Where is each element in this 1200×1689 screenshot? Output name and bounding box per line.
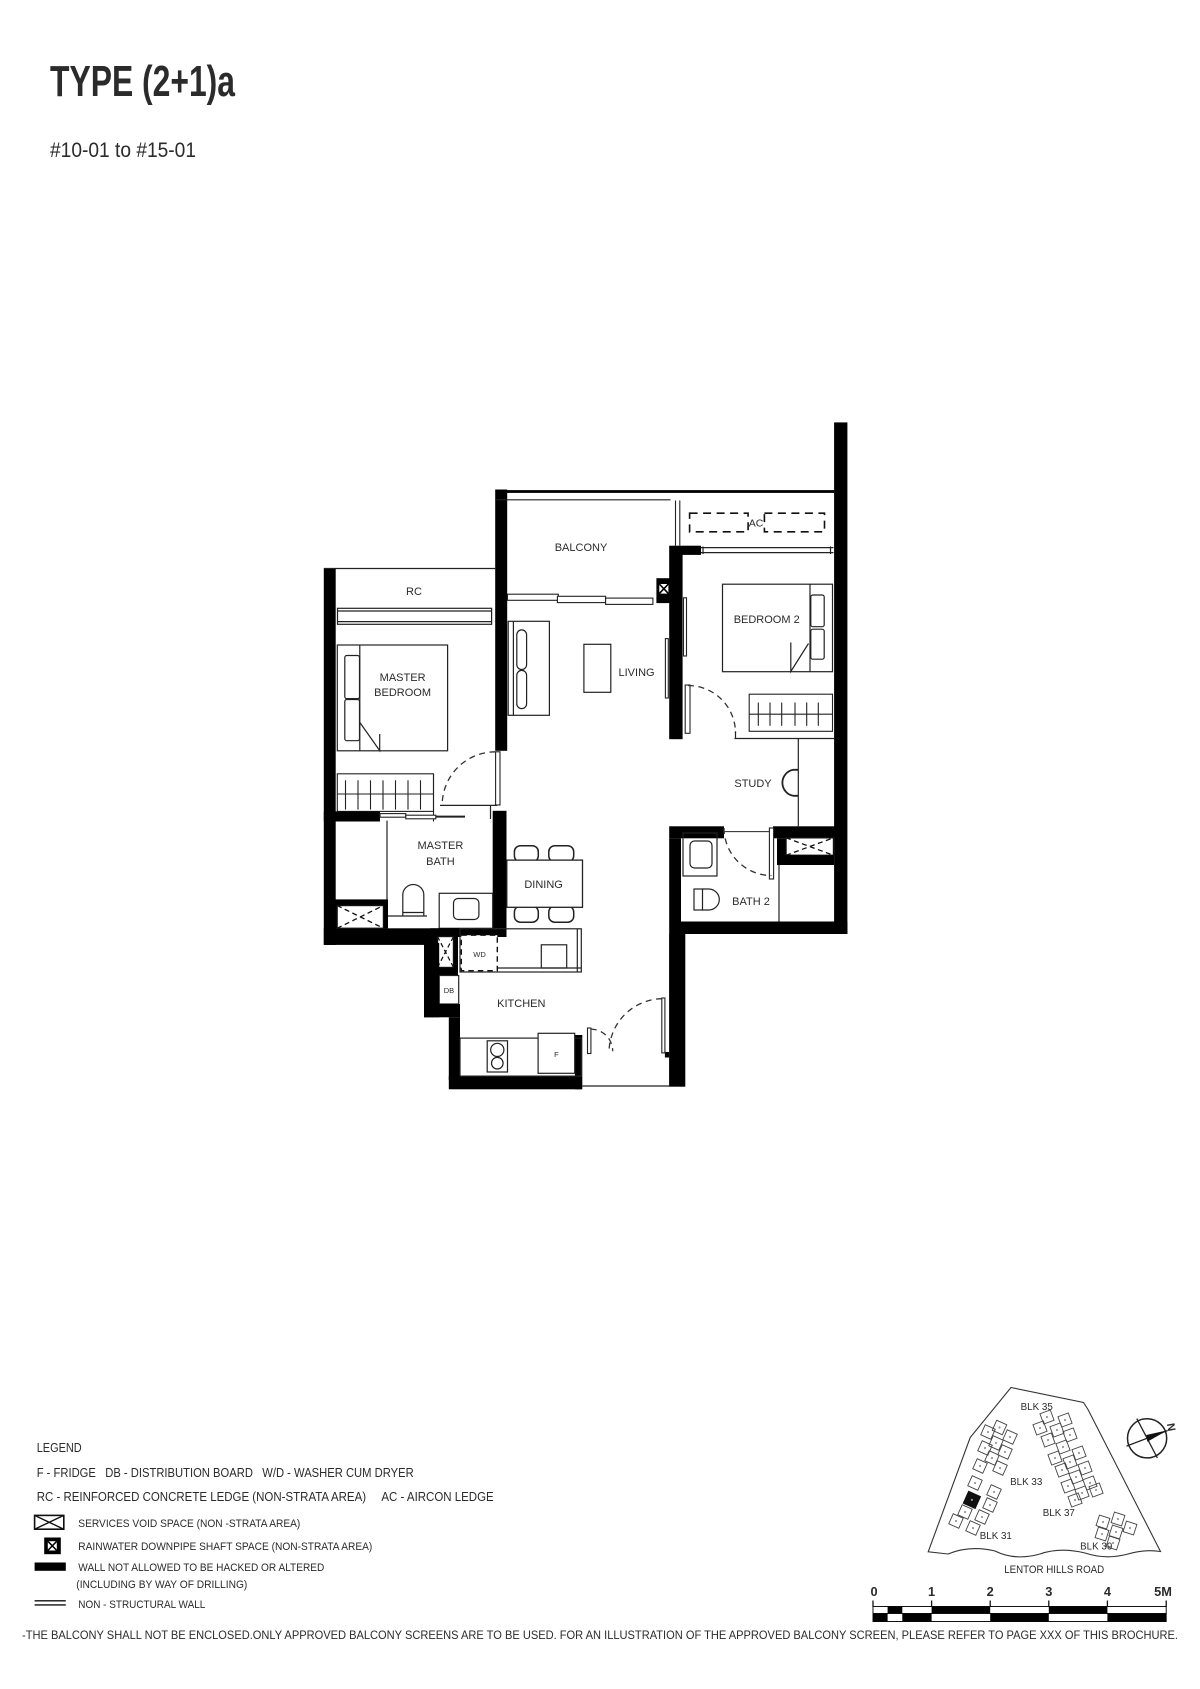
svg-text:F - FRIDGE DB - DISTRIBUTION: F - FRIDGE DB - DISTRIBUTION BOARD W/D -… <box>37 1466 414 1480</box>
svg-text:SERVICES VOID SPACE (NON -STRA: SERVICES VOID SPACE (NON -STRATA AREA) <box>78 1518 300 1530</box>
svg-text:F: F <box>554 1050 559 1059</box>
svg-text:5M: 5M <box>1154 1584 1172 1599</box>
svg-text:MASTER: MASTER <box>417 840 463 852</box>
svg-text:BALCONY: BALCONY <box>555 542 608 554</box>
svg-text:N: N <box>1164 1422 1177 1432</box>
svg-text:LEGEND: LEGEND <box>37 1441 82 1455</box>
svg-text:BEDROOM: BEDROOM <box>374 687 431 699</box>
svg-text:0: 0 <box>870 1584 877 1599</box>
svg-text:MASTER: MASTER <box>380 672 426 684</box>
svg-text:#10-01 to #15-01: #10-01 to #15-01 <box>50 139 196 162</box>
svg-text:KITCHEN: KITCHEN <box>497 998 545 1010</box>
svg-text:(INCLUDING BY WAY OF DRILLING): (INCLUDING BY WAY OF DRILLING) <box>76 1579 247 1591</box>
svg-text:BLK 31: BLK 31 <box>980 1531 1012 1542</box>
svg-text:DB: DB <box>444 986 454 995</box>
svg-text:STUDY: STUDY <box>734 778 772 790</box>
svg-text:BATH: BATH <box>426 856 455 868</box>
svg-text:DINING: DINING <box>524 879 563 891</box>
svg-text:BLK 33: BLK 33 <box>1010 1477 1043 1488</box>
svg-text:BLK 35: BLK 35 <box>1021 1402 1054 1413</box>
svg-text:RC: RC <box>406 586 422 598</box>
svg-text:BATH 2: BATH 2 <box>732 896 770 908</box>
svg-text:2: 2 <box>987 1584 994 1599</box>
svg-text:4: 4 <box>1104 1584 1112 1599</box>
svg-text:WALL NOT ALLOWED TO BE HACKED: WALL NOT ALLOWED TO BE HACKED OR ALTERED <box>78 1562 324 1574</box>
svg-text:RAINWATER DOWNPIPE SHAFT SPACE: RAINWATER DOWNPIPE SHAFT SPACE (NON-STRA… <box>78 1541 372 1553</box>
svg-text:LIVING: LIVING <box>619 667 655 679</box>
svg-text:NON - STRUCTURAL WALL: NON - STRUCTURAL WALL <box>78 1599 205 1611</box>
svg-text:BLK 39: BLK 39 <box>1080 1542 1112 1553</box>
svg-text:RC - REINFORCED CONCRETE LEDGE: RC - REINFORCED CONCRETE LEDGE (NON-STRA… <box>37 1490 494 1504</box>
svg-text:AC: AC <box>749 518 764 530</box>
svg-text:LENTOR HILLS ROAD: LENTOR HILLS ROAD <box>1004 1564 1104 1576</box>
svg-text:BEDROOM 2: BEDROOM 2 <box>734 614 800 626</box>
svg-text:BLK 37: BLK 37 <box>1043 1508 1075 1519</box>
svg-text:-THE BALCONY SHALL NOT BE ENCL: -THE BALCONY SHALL NOT BE ENCLOSED.ONLY … <box>22 1629 1178 1642</box>
svg-text:3: 3 <box>1045 1584 1052 1599</box>
svg-text:TYPE (2+1)a: TYPE (2+1)a <box>50 57 235 106</box>
svg-text:WD: WD <box>473 950 486 959</box>
svg-text:1: 1 <box>928 1584 935 1599</box>
